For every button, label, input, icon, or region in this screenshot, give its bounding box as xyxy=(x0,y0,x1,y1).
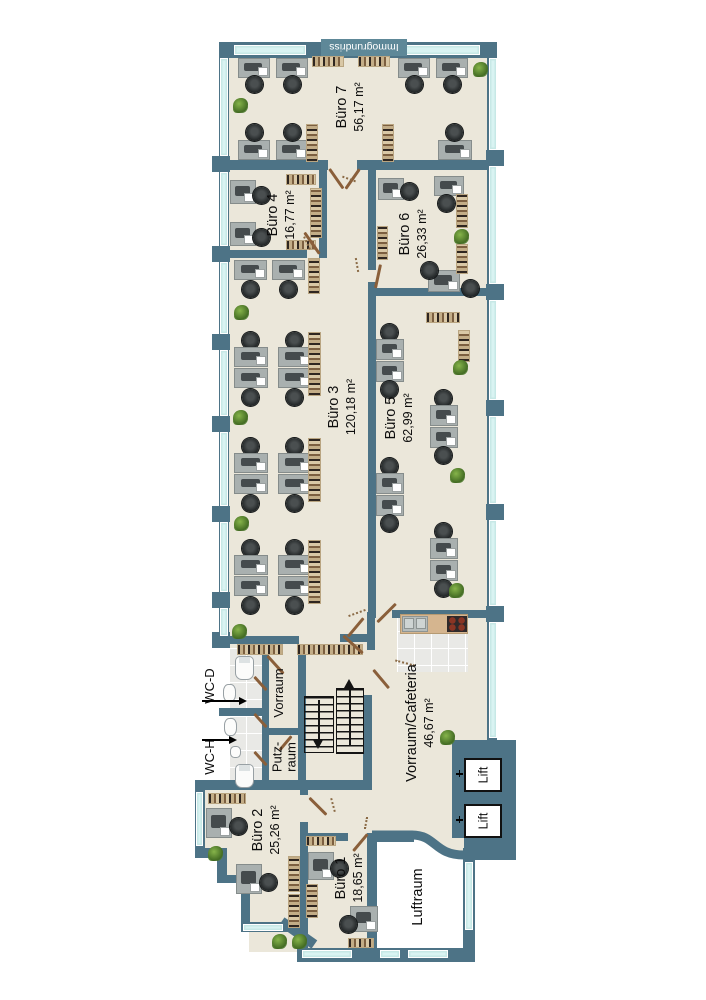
wc-h-arrow xyxy=(202,739,230,741)
window xyxy=(465,862,473,930)
window xyxy=(489,416,497,504)
wall-segment xyxy=(372,833,414,842)
pilaster xyxy=(486,400,504,416)
desk xyxy=(238,58,270,78)
desk xyxy=(234,474,268,494)
room-label-wc-d: WC-D xyxy=(203,668,217,703)
desk xyxy=(234,347,268,367)
office-chair xyxy=(401,183,418,200)
room-name: WC-D xyxy=(203,668,217,703)
bookshelf xyxy=(308,332,321,396)
stair-arrow-down xyxy=(313,740,323,749)
desk xyxy=(278,555,312,575)
room-label-buero1: Büro 1 18,65 m² xyxy=(334,853,366,902)
wall-segment xyxy=(219,250,307,258)
bookshelf xyxy=(348,938,374,948)
room-name: Büro 6 xyxy=(398,209,414,258)
room-area: 25,26 m² xyxy=(269,805,283,854)
office-chair xyxy=(286,597,303,614)
stair-arrow-stem xyxy=(349,690,351,746)
bookshelf xyxy=(426,312,460,323)
washbasin xyxy=(230,746,241,758)
room-area: 26,33 m² xyxy=(416,209,430,258)
room-label-putzraum: Putz- raum xyxy=(271,742,300,772)
stair-arrow-up xyxy=(344,679,354,688)
bookshelf xyxy=(308,540,321,604)
room-label-buero2: Büro 2 25,26 m² xyxy=(251,805,283,854)
pilaster xyxy=(486,606,504,622)
lift-door-mark xyxy=(456,819,463,821)
window xyxy=(489,300,497,400)
pilaster xyxy=(486,284,504,300)
desk xyxy=(278,453,312,473)
room-name: Büro 7 xyxy=(335,82,351,131)
office-chair xyxy=(438,195,455,212)
room-label-buero3: Büro 3 120,18 m² xyxy=(327,379,359,435)
room-label-vorraum: Vorraum xyxy=(272,668,286,717)
bookshelf xyxy=(306,836,336,846)
room-name: Vorraum xyxy=(272,668,286,717)
window xyxy=(408,950,448,958)
kitchen-stove xyxy=(447,616,467,632)
pilaster xyxy=(212,246,230,262)
wall-segment xyxy=(368,296,376,618)
lift-box: Lift xyxy=(464,758,502,792)
bookshelf xyxy=(382,124,394,162)
room-name: Luftraum xyxy=(411,868,427,925)
desk xyxy=(276,58,308,78)
room-name: raum xyxy=(285,742,299,772)
office-chair xyxy=(444,76,461,93)
desk xyxy=(234,260,267,280)
desk xyxy=(278,347,312,367)
room-label-wc-h: WC-H xyxy=(203,739,217,774)
desk xyxy=(430,427,458,448)
desk xyxy=(430,405,458,426)
desk xyxy=(272,260,305,280)
office-chair xyxy=(246,124,263,141)
bookshelf xyxy=(456,244,468,274)
bookshelf xyxy=(288,894,300,928)
pilaster xyxy=(486,504,504,520)
bookshelf xyxy=(308,258,320,294)
office-chair xyxy=(280,281,297,298)
office-chair xyxy=(284,124,301,141)
desk xyxy=(376,361,404,382)
desk xyxy=(278,368,312,388)
office-chair xyxy=(242,495,259,512)
desk xyxy=(430,560,458,581)
office-chair xyxy=(242,389,259,406)
bookshelf xyxy=(458,330,470,362)
desk xyxy=(376,495,404,516)
office-chair xyxy=(446,124,463,141)
office-chair xyxy=(435,447,452,464)
desk xyxy=(376,339,404,360)
window xyxy=(489,166,497,284)
bookshelf xyxy=(377,226,388,260)
desk xyxy=(230,222,256,246)
desk xyxy=(430,538,458,559)
washbasin xyxy=(224,718,237,736)
window xyxy=(220,350,228,416)
room-name: Vorraum/Cafeteria xyxy=(405,664,421,782)
wall-segment xyxy=(367,612,375,650)
room-name: Büro 5 xyxy=(384,393,400,442)
wall-segment xyxy=(363,695,372,780)
window xyxy=(302,950,352,958)
desk xyxy=(206,808,232,838)
office-chair xyxy=(242,281,259,298)
office-chair xyxy=(284,76,301,93)
wall-segment xyxy=(300,780,308,795)
desk xyxy=(278,474,312,494)
desk xyxy=(234,555,268,575)
bookshelf xyxy=(308,438,321,502)
bookshelf xyxy=(312,56,344,67)
window xyxy=(489,520,497,606)
room-name: Büro 4 xyxy=(266,190,282,239)
desk xyxy=(434,176,464,196)
wall-segment xyxy=(219,708,269,716)
lift-label: Lift xyxy=(476,767,490,784)
bookshelf xyxy=(306,884,318,918)
room-area: 56,17 m² xyxy=(353,82,367,131)
window xyxy=(489,622,497,738)
office-chair xyxy=(340,916,357,933)
window xyxy=(220,58,228,156)
desk xyxy=(378,178,404,200)
office-chair xyxy=(246,76,263,93)
pilaster xyxy=(212,592,230,608)
desk xyxy=(234,453,268,473)
lift-shaft xyxy=(464,838,516,860)
sink-basin xyxy=(404,618,414,629)
room-label-buero7: Büro 7 56,17 m² xyxy=(335,82,367,131)
desk xyxy=(234,576,268,596)
room-name: Büro 2 xyxy=(251,805,267,854)
toilet xyxy=(235,656,254,680)
bookshelf xyxy=(208,793,246,804)
office-chair xyxy=(286,389,303,406)
office-chair xyxy=(242,597,259,614)
bookshelf xyxy=(306,124,318,162)
window xyxy=(234,45,306,55)
desk xyxy=(376,473,404,494)
floor-plan: Lift Lift xyxy=(0,0,706,1000)
desk xyxy=(230,180,256,204)
sink-basin xyxy=(416,618,426,629)
desk xyxy=(438,140,472,160)
desk xyxy=(276,140,308,160)
window xyxy=(220,522,228,592)
room-label-buero6: Büro 6 26,33 m² xyxy=(398,209,430,258)
window xyxy=(243,924,283,931)
desk xyxy=(238,140,270,160)
room-name: WC-H xyxy=(203,739,217,774)
desk xyxy=(398,58,430,78)
lift-label: Lift xyxy=(476,813,490,830)
toilet xyxy=(235,764,254,788)
office-chair xyxy=(286,495,303,512)
wall-segment xyxy=(268,728,306,735)
wall-segment xyxy=(195,780,372,790)
lift-door-mark xyxy=(456,773,463,775)
desk xyxy=(436,58,468,78)
window xyxy=(489,58,497,150)
room-name: Putz- xyxy=(271,742,285,772)
lift-box: Lift xyxy=(464,804,502,838)
office-chair xyxy=(421,262,438,279)
window xyxy=(396,45,480,55)
pilaster xyxy=(486,150,504,166)
bookshelf xyxy=(310,188,322,238)
window xyxy=(220,172,228,246)
desk xyxy=(236,864,262,894)
pilaster xyxy=(212,156,230,172)
room-area: 120,18 m² xyxy=(345,379,359,435)
window xyxy=(380,950,400,958)
office-chair xyxy=(381,515,398,532)
bookshelf xyxy=(358,56,390,67)
room-area: 46,67 m² xyxy=(423,664,437,782)
room-area: 62,99 m² xyxy=(402,393,416,442)
room-label-cafeteria: Vorraum/Cafeteria 46,67 m² xyxy=(405,664,437,782)
office-chair xyxy=(230,818,247,835)
room-name: Büro 3 xyxy=(327,379,343,435)
room-label-buero4: Büro 4 16,77 m² xyxy=(266,190,298,239)
bookshelf xyxy=(288,856,300,892)
bookshelf xyxy=(286,174,316,185)
room-area: 18,65 m² xyxy=(352,853,366,902)
wall-segment xyxy=(368,170,376,270)
stair-arrow-stem xyxy=(318,700,320,742)
window xyxy=(220,432,228,506)
desk xyxy=(278,576,312,596)
room-name: Büro 1 xyxy=(334,853,350,902)
room-label-buero5: Büro 5 62,99 m² xyxy=(384,393,416,442)
window xyxy=(220,608,228,636)
office-chair xyxy=(406,76,423,93)
bookshelf xyxy=(456,194,468,228)
wc-d-arrow xyxy=(202,700,240,702)
bookshelf xyxy=(237,644,283,655)
wall-segment xyxy=(219,636,299,644)
desk xyxy=(308,852,334,880)
office-chair xyxy=(462,280,479,297)
window xyxy=(196,792,203,846)
room-area: 16,77 m² xyxy=(284,190,298,239)
pilaster xyxy=(212,506,230,522)
watermark: Immogrundriss xyxy=(321,39,407,56)
wall-segment xyxy=(357,160,497,170)
pilaster xyxy=(212,416,230,432)
room-label-luftraum: Luftraum xyxy=(411,868,427,925)
desk xyxy=(234,368,268,388)
office-chair xyxy=(260,874,277,891)
pilaster xyxy=(212,334,230,350)
window xyxy=(220,262,228,334)
